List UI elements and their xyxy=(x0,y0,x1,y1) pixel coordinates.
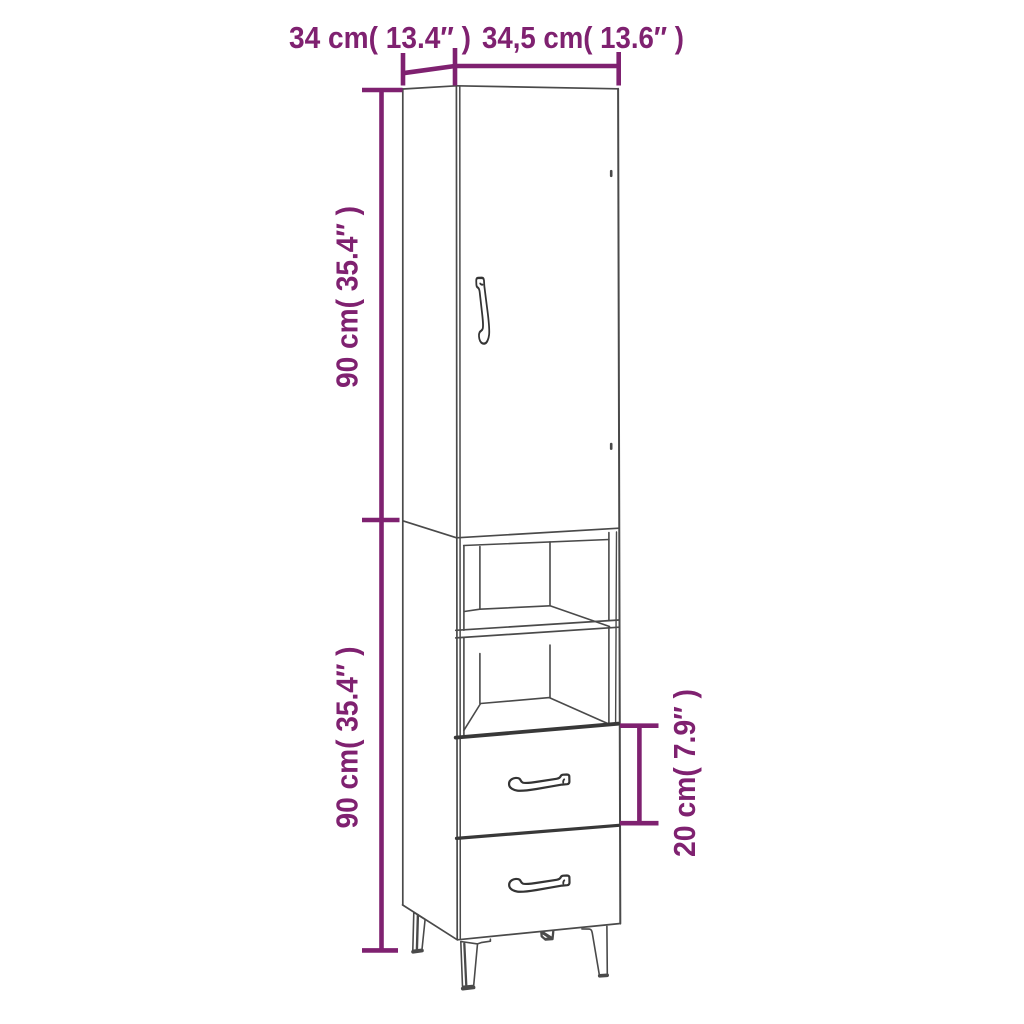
svg-text:20 cm( 7.9″ ): 20 cm( 7.9″ ) xyxy=(667,689,702,857)
svg-text:34 cm( 13.4″ ): 34 cm( 13.4″ ) xyxy=(289,20,471,55)
svg-text:34,5 cm( 13.6″ ): 34,5 cm( 13.6″ ) xyxy=(482,20,684,55)
svg-text:90 cm( 35.4″ ): 90 cm( 35.4″ ) xyxy=(330,206,365,388)
svg-text:90 cm( 35.4″ ): 90 cm( 35.4″ ) xyxy=(330,647,365,829)
